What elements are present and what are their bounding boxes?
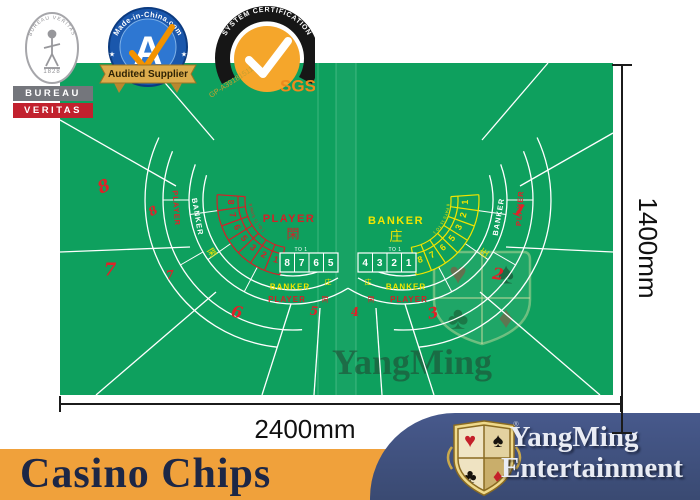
- brand-name: YangMing Entertainment: [488, 423, 696, 483]
- seat-number: 4: [350, 305, 359, 320]
- player-main-label: PLAYER: [263, 213, 316, 225]
- row-number: 3: [377, 258, 383, 269]
- player-cn-cell: 閑: [368, 296, 375, 304]
- banker-band-label: BANKER: [270, 283, 310, 292]
- star-icon: ★: [181, 51, 187, 59]
- bureau-veritas-badge: BUREAU VERITAS 1828 BUREAU VERITAS: [8, 8, 108, 128]
- row-number: 7: [299, 258, 305, 269]
- brand-line1: YangMing: [488, 423, 660, 452]
- product-title: Casino Chips: [20, 450, 271, 498]
- player-band-label: PLAYER: [390, 295, 428, 304]
- to-1-label: TO 1: [294, 247, 307, 253]
- row-number: 6: [313, 258, 319, 269]
- row-number: 1: [406, 258, 412, 269]
- row-number: 8: [284, 258, 290, 269]
- row-number: 4: [362, 258, 368, 269]
- mic-banner-label: Audited Supplier: [108, 69, 188, 80]
- player-main-cn: 閑: [286, 227, 299, 242]
- tie-arc-number: 1: [460, 200, 470, 205]
- row-number: 5: [328, 258, 334, 269]
- watermark-text: YangMing: [332, 342, 492, 382]
- sgs-brand: SGS: [280, 77, 315, 96]
- brand-panel: ♥ ♠ ♣ ♦ ® YangMing Entertainment: [370, 413, 700, 500]
- player-cn-cell: 閑: [322, 296, 329, 304]
- banker-cn-cell: 庄: [365, 278, 372, 287]
- banker-main-label: BANKER: [368, 215, 424, 227]
- sgs-badge: SYSTEM CERTIFICATION GP-A39181511 SGS: [203, 0, 315, 104]
- heart-icon: ♥: [449, 258, 467, 291]
- banker-main-cn: 庄: [389, 229, 402, 244]
- seat-number: 5: [309, 304, 319, 319]
- to-1-label: TO 1: [388, 247, 401, 253]
- row-number: 2: [391, 258, 397, 269]
- seat-number: 7: [104, 260, 117, 281]
- bv-bar1-label: BUREAU: [25, 88, 81, 99]
- banker-band-label: BANKER: [386, 283, 426, 292]
- bv-year: 1828: [43, 69, 60, 75]
- heart-icon: ♥: [464, 430, 476, 452]
- tie-arc-number: 8: [226, 200, 236, 205]
- banker-cn-cell: 庄: [325, 278, 332, 287]
- bv-bar2-label: VERITAS: [24, 105, 82, 116]
- player-band-label: PLAYER: [268, 295, 306, 304]
- brand-line2: Entertainment: [488, 454, 696, 483]
- star-icon: ★: [109, 51, 115, 59]
- product-image: ♥ ♠ ♣ ♦ YangMing: [0, 0, 700, 500]
- shield-flourish: [448, 447, 452, 469]
- made-in-china-badge: Made-in-China.com ★ ★ A Audited Supplier: [98, 3, 198, 103]
